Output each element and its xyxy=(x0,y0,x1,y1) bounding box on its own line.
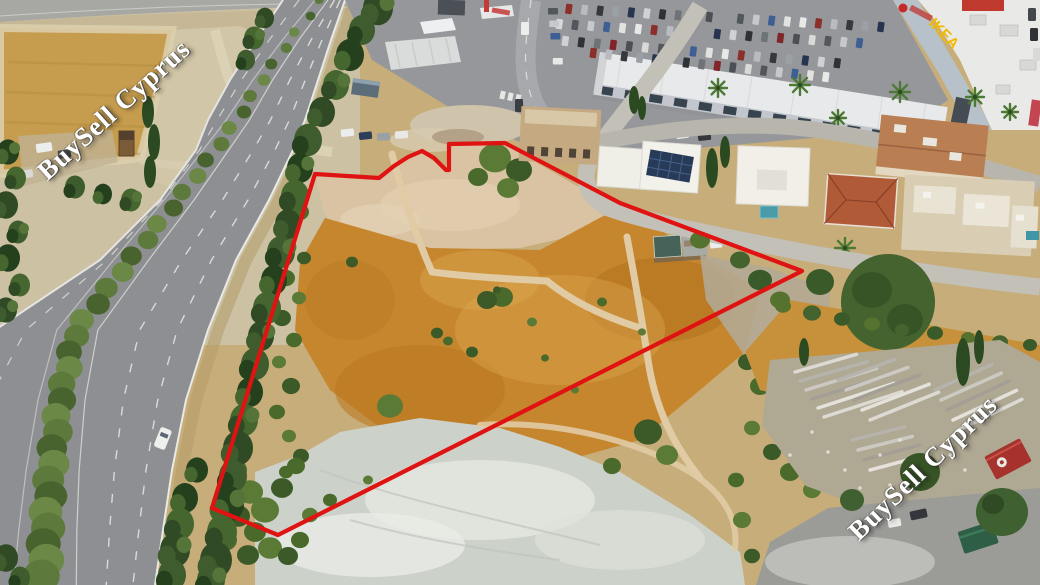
house xyxy=(736,146,810,206)
aerial-photo: IKEA xyxy=(0,0,1040,585)
house xyxy=(875,115,989,186)
ruined-shack xyxy=(119,131,134,156)
house-complex xyxy=(901,175,1040,257)
swimming-pool xyxy=(1026,231,1039,240)
terracotta-roof-house xyxy=(824,174,897,229)
large-tree xyxy=(841,254,935,350)
red-banner-sign xyxy=(962,0,1004,11)
store-logo xyxy=(899,4,908,13)
tree xyxy=(900,453,940,491)
tree xyxy=(840,489,864,511)
red-sign xyxy=(484,0,489,12)
dark-roof-building xyxy=(438,0,466,15)
swimming-pool xyxy=(760,206,778,218)
tree xyxy=(976,488,1028,536)
aerial-photo-canvas: IKEA xyxy=(0,0,1040,585)
storage-yard xyxy=(756,340,1040,585)
